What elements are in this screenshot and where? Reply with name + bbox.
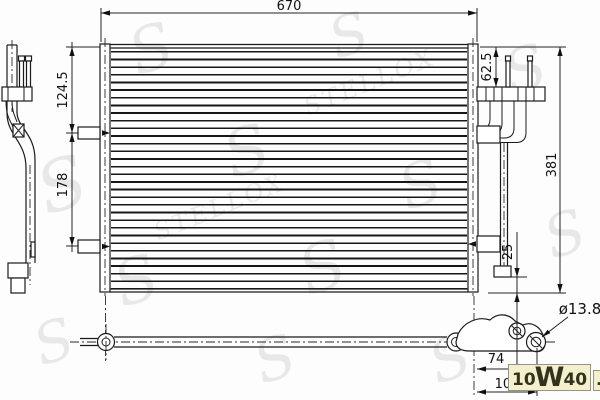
dim-right-upper: 62.5 bbox=[480, 47, 566, 87]
dim-label-670: 670 bbox=[277, 0, 302, 14]
technical-drawing-page: S S S S S S S S S S S S STELLOX STELLOX bbox=[0, 0, 600, 400]
dim-pipe-diameter: ø13.8 bbox=[542, 300, 600, 337]
pipe-cap bbox=[506, 56, 511, 61]
pipe-cap bbox=[19, 56, 25, 61]
logo-text-ru: .ru bbox=[596, 371, 600, 390]
dim-label-381: 381 bbox=[545, 153, 560, 178]
dim-bottom-right-offset: 25 bbox=[501, 232, 527, 374]
inlet-pipe bbox=[506, 61, 510, 87]
site-watermark-logo: 10 W 40 .ru bbox=[508, 364, 600, 391]
bracket-right bbox=[477, 236, 500, 252]
logo-text-w: W bbox=[535, 367, 565, 390]
side-bracket-lower bbox=[31, 242, 35, 257]
dim-overall-height: 381 bbox=[488, 47, 566, 293]
dim-label-178: 178 bbox=[56, 173, 71, 198]
dim-label-25: 25 bbox=[501, 244, 516, 261]
side-view bbox=[2, 40, 35, 293]
dim-label-62-5: 62.5 bbox=[480, 53, 495, 82]
pipe-cap bbox=[26, 56, 32, 61]
connector-block bbox=[477, 87, 545, 101]
side-pipe bbox=[27, 61, 31, 87]
side-foot-upper bbox=[8, 263, 28, 278]
bracket-left-lower bbox=[78, 240, 100, 253]
outlet-pipe bbox=[528, 61, 532, 87]
tube-end-fitting bbox=[494, 266, 511, 277]
dim-label-diameter: ø13.8 bbox=[559, 300, 600, 318]
header-fitting bbox=[477, 126, 500, 143]
dim-label-124-5: 124.5 bbox=[56, 71, 71, 108]
side-foot-lower bbox=[11, 278, 25, 293]
logo-tld-box: .ru bbox=[593, 370, 600, 391]
logo-text-10: 10 bbox=[512, 370, 536, 390]
side-connector-block bbox=[2, 87, 32, 101]
dim-left-stack: 124.5 178 bbox=[56, 42, 100, 252]
bracket-left-upper bbox=[78, 127, 100, 139]
drawing-svg: 670 124.5 178 62.5 bbox=[0, 0, 600, 400]
bottom-view bbox=[70, 315, 556, 360]
side-pipe bbox=[20, 61, 24, 87]
dim-overall-width: 670 bbox=[101, 0, 477, 42]
logo-text-40: 40 bbox=[563, 370, 587, 390]
logo-main-box: 10 W 40 bbox=[508, 364, 591, 391]
dim-label-74: 74 bbox=[488, 352, 505, 367]
pipe-cap bbox=[528, 56, 533, 61]
